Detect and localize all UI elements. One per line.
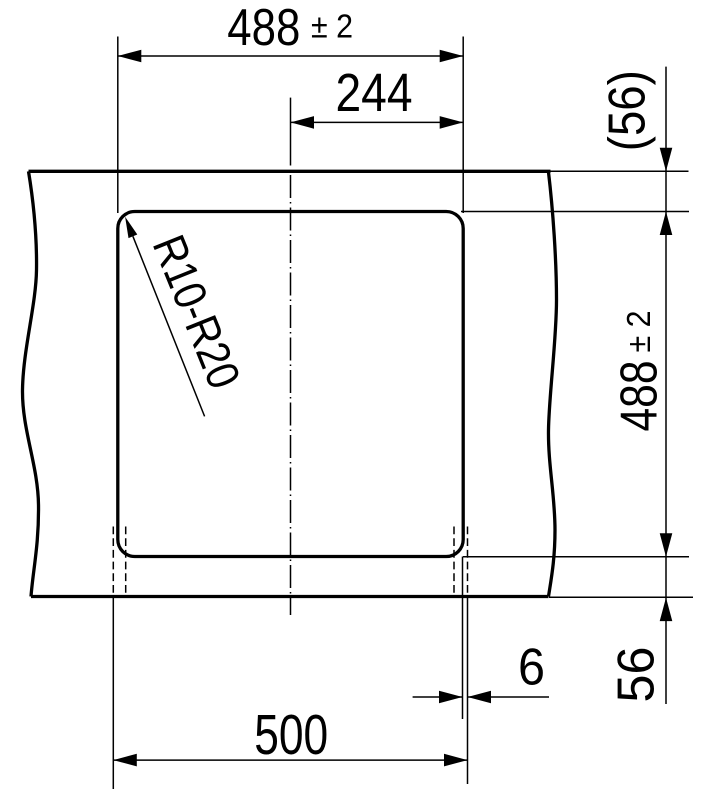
svg-text:± 2: ± 2 — [311, 8, 353, 45]
svg-text:(56): (56) — [599, 70, 657, 151]
svg-text:488: 488 — [227, 0, 300, 57]
svg-text:244: 244 — [336, 64, 413, 123]
svg-text:500: 500 — [254, 703, 328, 767]
svg-text:488: 488 — [611, 361, 669, 432]
svg-text:± 2: ± 2 — [620, 311, 657, 353]
svg-text:56: 56 — [608, 647, 666, 703]
svg-text:6: 6 — [518, 639, 545, 697]
